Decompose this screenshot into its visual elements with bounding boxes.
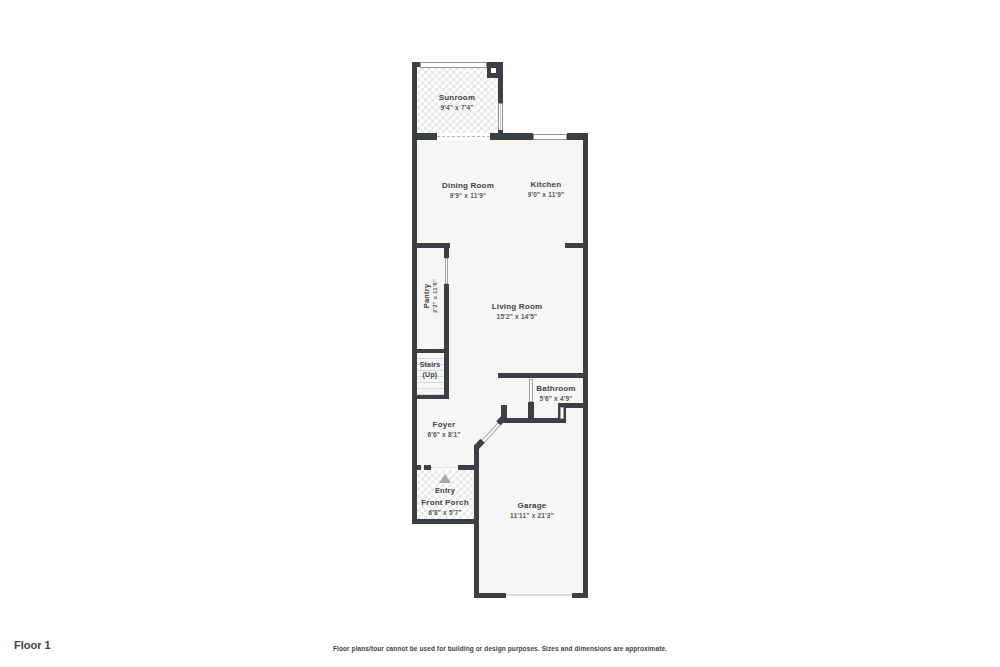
room-dimensions: 9'9" x 11'9" (442, 192, 494, 200)
garage-left-wall (474, 445, 479, 598)
room-name: Entry (435, 486, 455, 495)
porch-bottom-wall (412, 519, 474, 524)
room-name: Dining Room (442, 181, 494, 191)
room-dimensions: 6'6" x 8'1" (427, 431, 460, 439)
corner-marker-icon (491, 68, 496, 73)
room-label-stairs: Stairs (Up) (420, 361, 441, 380)
stairs-bottom-wall (412, 395, 449, 399)
room-dimensions: 5'6" x 4'9" (536, 395, 575, 403)
room-name: Living Room (492, 302, 543, 312)
room-name: Kitchen (528, 180, 565, 190)
sunroom-top-window (420, 62, 487, 68)
room-dimensions: 6'8" x 5'7" (421, 509, 469, 517)
room-dimensions: 9'4" x 7'4" (439, 104, 476, 112)
room-dimensions: 11'11" x 21'3" (510, 512, 554, 520)
pantry-wall-lower (444, 284, 449, 398)
right-exterior-wall (583, 140, 588, 598)
room-dimensions: 15'2" x 14'5" (492, 313, 543, 321)
front-door-post-left (424, 465, 431, 470)
room-name: Foyer (427, 420, 460, 430)
sunroom-right-window (498, 103, 503, 132)
floor-plan: Sunroom 9'4" x 7'4" Dining Room 9'9" x 1… (0, 0, 1000, 667)
hall-bottom-wall (501, 418, 563, 423)
room-dimensions: (Up) (420, 371, 441, 380)
pantry-door (445, 258, 448, 284)
kitchen-window (533, 134, 567, 140)
pantry-wall-upper (444, 248, 449, 258)
room-name: Stairs (420, 361, 441, 370)
room-label-living-room: Living Room 15'2" x 14'5" (492, 302, 543, 321)
garage-bottom-wall-left (474, 593, 506, 598)
disclaimer-text: Floor plans/tour cannot be used for buil… (0, 645, 1000, 652)
room-label-pantry: Pantry 2'3" x 11'6" (422, 279, 440, 313)
room-name: Bathroom (536, 384, 575, 394)
porch-top-wall-left (412, 465, 421, 470)
sunroom-opening-dashed-line (437, 136, 490, 137)
top-wall-right (567, 133, 588, 140)
room-name: Front Porch (421, 498, 469, 508)
room-label-garage: Garage 11'11" x 21'3" (510, 501, 554, 520)
room-dimensions: 2'3" x 11'6" (432, 279, 440, 313)
sunroom-left-wall (412, 62, 417, 135)
room-name: Sunroom (439, 93, 476, 103)
room-label-foyer: Foyer 6'6" x 8'1" (427, 420, 460, 439)
sunroom-right-wall-upper (498, 78, 503, 103)
garage-hall-door (560, 407, 564, 419)
room-label-front-porch: Front Porch 6'8" x 5'7" (421, 498, 469, 517)
room-name: Pantry (422, 279, 431, 313)
top-wall-left (412, 133, 437, 140)
room-name: Garage (510, 501, 554, 511)
room-label-entry: Entry (435, 486, 455, 495)
porch-top-wall-right (466, 465, 474, 470)
bathroom-top-wall (498, 373, 588, 378)
garage-bottom-wall-right (572, 593, 588, 598)
entry-direction-icon (439, 474, 451, 483)
top-wall-middle (490, 133, 533, 140)
garage-door-opening (506, 594, 572, 596)
room-dimensions: 9'0" x 11'9" (528, 191, 565, 199)
bathroom-door (529, 379, 533, 402)
room-label-kitchen: Kitchen 9'0" x 11'9" (528, 180, 565, 199)
room-label-bathroom: Bathroom 5'6" x 4'9" (536, 384, 575, 403)
room-label-dining-room: Dining Room 9'9" x 11'9" (442, 181, 494, 200)
front-door-post-right (458, 465, 466, 470)
kitchen-living-wall-right (565, 243, 588, 248)
floor-plan-page: Sunroom 9'4" x 7'4" Dining Room 9'9" x 1… (0, 0, 1000, 667)
room-label-sunroom: Sunroom 9'4" x 7'4" (439, 93, 476, 112)
